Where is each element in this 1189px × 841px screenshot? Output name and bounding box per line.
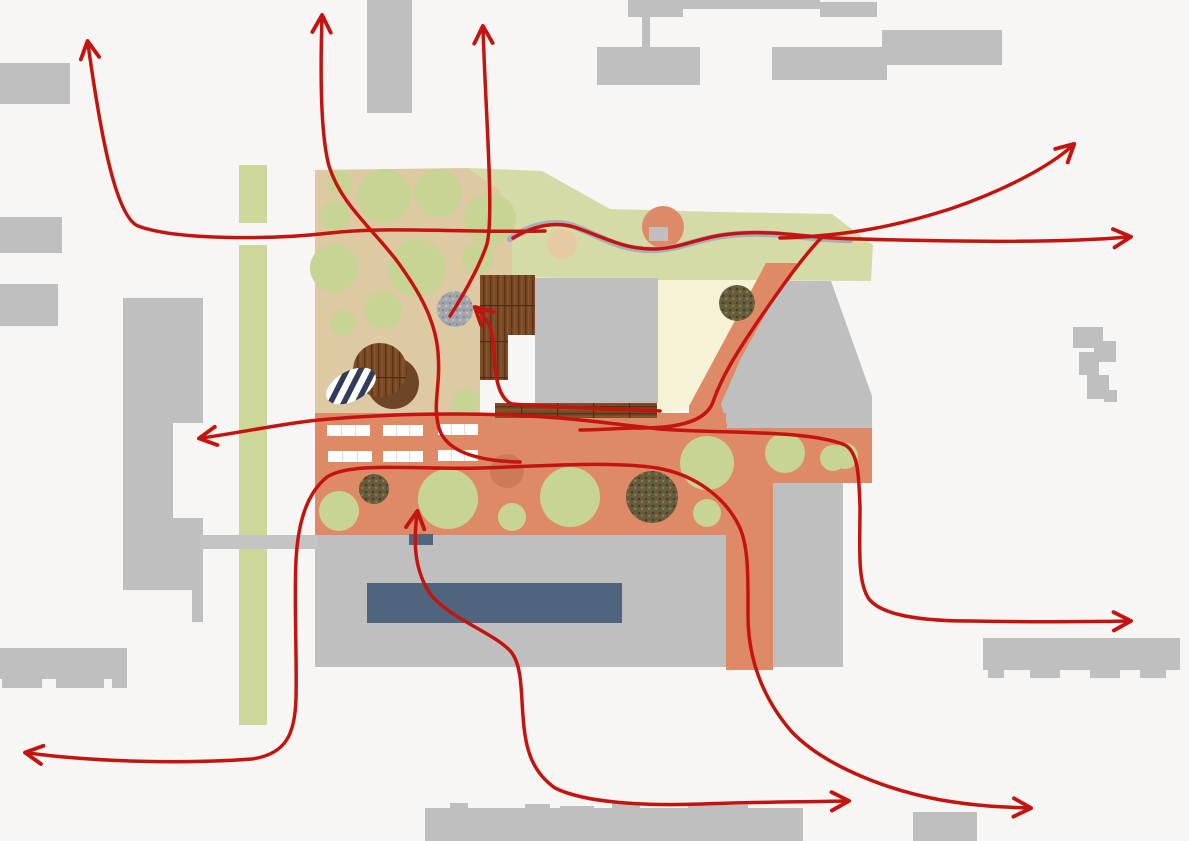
- tree-circle: [320, 201, 350, 231]
- planting-circle-dark: [719, 285, 755, 321]
- tree-circle: [418, 469, 478, 529]
- context-building: [642, 17, 650, 48]
- context-building-bump: [450, 803, 468, 809]
- context-building-tooth: [112, 679, 127, 688]
- context-building: [683, 0, 820, 9]
- context-building: [1104, 390, 1117, 402]
- parking-strip: [438, 424, 478, 435]
- context-building: [425, 808, 803, 841]
- tree-circle: [364, 291, 402, 329]
- planting-circle-dark: [359, 474, 389, 504]
- parking-strip: [383, 451, 423, 462]
- tree-circle: [319, 491, 359, 531]
- context-building-tooth: [988, 670, 1004, 678]
- tree-circle: [498, 503, 526, 531]
- context-building: [772, 47, 887, 80]
- context-building-tooth: [1090, 670, 1120, 678]
- context-building-tooth: [1140, 670, 1166, 678]
- green-strip-segment: [239, 165, 267, 223]
- parking-strip: [328, 451, 372, 462]
- green-strip-segment: [239, 549, 267, 725]
- context-building: [628, 0, 683, 17]
- context-building: [882, 30, 1002, 65]
- terracotta-band: [726, 483, 773, 532]
- tree-circle: [680, 436, 734, 490]
- context-building: [0, 63, 70, 104]
- parking-strip-pad: [383, 451, 423, 462]
- tree-circle: [452, 388, 480, 416]
- context-building-bump: [525, 804, 550, 809]
- tree-circle: [540, 467, 600, 527]
- access-road: [200, 535, 318, 549]
- parking-strip-pad: [327, 425, 370, 436]
- context-building: [597, 47, 700, 85]
- context-building-tooth: [1030, 670, 1060, 678]
- context-building: [367, 0, 412, 113]
- tree-circle: [310, 244, 358, 292]
- context-building-tooth: [56, 679, 104, 688]
- context-building-bump: [560, 806, 594, 809]
- context-building: [0, 217, 62, 253]
- context-building: [983, 638, 1180, 670]
- tree-circle: [693, 499, 721, 527]
- context-building: [1079, 352, 1099, 375]
- lower-right-building: [773, 483, 843, 667]
- site-plan-circulation-diagram: [0, 0, 1189, 841]
- context-building: [0, 284, 58, 326]
- parking-strip: [327, 425, 370, 436]
- context-building: [0, 648, 127, 679]
- slate-platform: [409, 534, 433, 545]
- site-plan-svg: [0, 0, 1189, 841]
- tan-circle: [547, 229, 577, 259]
- tree-circle: [414, 169, 462, 217]
- pool: [367, 583, 622, 623]
- parking-strip-pad: [328, 451, 372, 462]
- context-building-tooth: [2, 679, 42, 688]
- tree-circle: [330, 310, 356, 336]
- planting-circle-dark: [626, 471, 678, 523]
- parking-strip: [383, 425, 423, 436]
- tree-circle: [357, 169, 411, 223]
- green-strip-segment: [239, 245, 267, 535]
- context-building: [820, 2, 877, 17]
- context-building: [913, 812, 977, 841]
- main-building: [535, 278, 658, 403]
- tree-circle: [765, 433, 805, 473]
- parking-strip-pad: [438, 424, 478, 435]
- orange-circle-platform: [649, 227, 668, 241]
- parking-strip-pad: [383, 425, 423, 436]
